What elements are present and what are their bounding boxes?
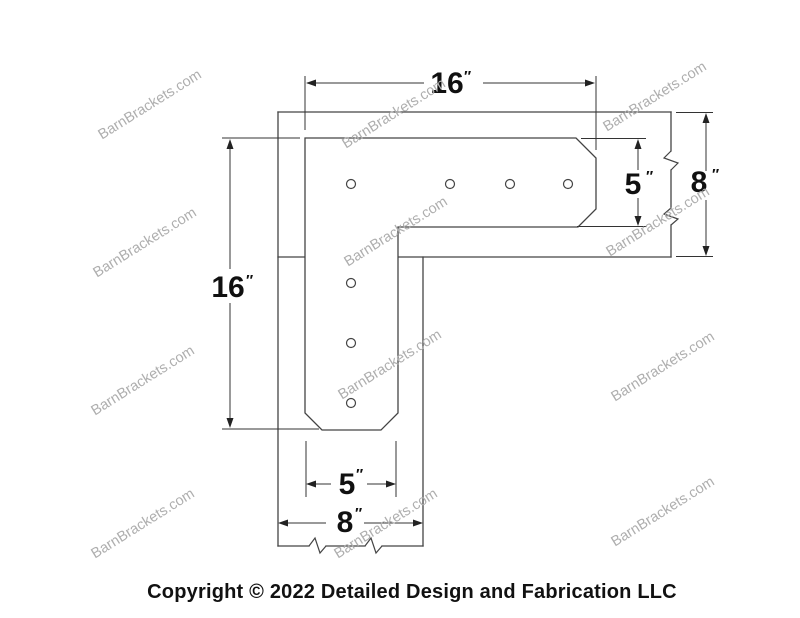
bolt-hole (564, 180, 573, 189)
dim-bottom-bracket-value: 5 (339, 468, 356, 501)
dim-right-beam-unit: ″ (712, 166, 720, 183)
break-mark (664, 151, 678, 170)
arrowhead-down (703, 246, 710, 256)
arrowhead-left (278, 520, 288, 527)
arrowhead-left (306, 80, 316, 87)
arrowhead-up (703, 113, 710, 123)
dim-bottom-post-value: 8 (337, 506, 354, 539)
arrowhead-down (227, 418, 234, 428)
dim-top-width-value: 16 (430, 67, 463, 100)
dim-bottom-bracket-unit: ″ (356, 466, 364, 483)
dimension-bottom-5: 5 ″ (306, 441, 396, 501)
bolt-hole (347, 339, 356, 348)
dimension-bottom-8: 8 ″ (278, 505, 423, 539)
bracket-plate (305, 138, 596, 430)
dim-top-width-unit: ″ (464, 68, 472, 85)
bolt-hole (347, 399, 356, 408)
break-mark (309, 538, 326, 553)
dim-right-beam-value: 8 (691, 166, 708, 199)
arrowhead-up (635, 139, 642, 149)
break-mark (664, 208, 678, 225)
arrowhead-right (413, 520, 423, 527)
bolt-hole (506, 180, 515, 189)
technical-drawing-svg: 16 ″ 16 ″ 5 ″ 8 ″ (0, 0, 800, 618)
dim-right-bracket-value: 5 (625, 168, 642, 201)
dimension-right-8: 8 ″ (676, 113, 720, 257)
arrowhead-down (635, 216, 642, 226)
copyright-text: Copyright © 2022 Detailed Design and Fab… (12, 581, 800, 604)
drawing-page: 16 ″ 16 ″ 5 ″ 8 ″ (0, 0, 800, 618)
arrowhead-up (227, 139, 234, 149)
dim-right-bracket-unit: ″ (646, 168, 654, 185)
dim-left-height-unit: ″ (246, 272, 254, 289)
dimension-left-16: 16 ″ (211, 138, 319, 429)
dim-left-height-value: 16 (211, 271, 244, 304)
bolt-hole (347, 180, 356, 189)
arrowhead-right (585, 80, 595, 87)
arrowhead-left (306, 481, 316, 488)
break-mark (365, 538, 382, 553)
arrowhead-right (386, 481, 396, 488)
bolt-hole (347, 279, 356, 288)
dim-bottom-post-unit: ″ (355, 505, 363, 522)
bolt-hole (446, 180, 455, 189)
